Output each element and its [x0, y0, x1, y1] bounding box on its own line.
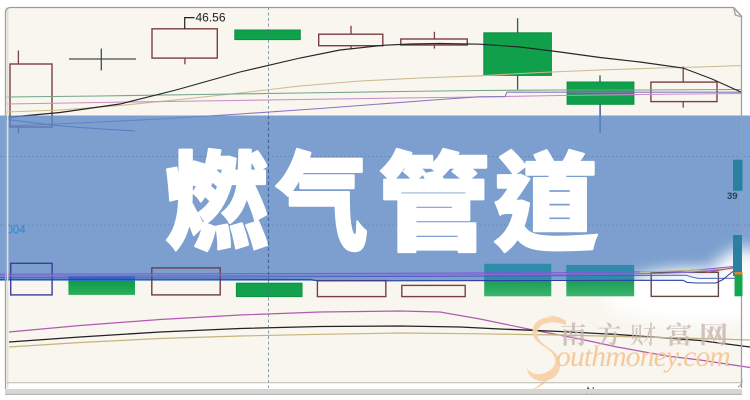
svg-text:39: 39 — [727, 191, 738, 202]
svg-text:outhmoney.com: outhmoney.com — [556, 341, 730, 373]
svg-text:004: 004 — [7, 225, 27, 237]
svg-text:46.56: 46.56 — [196, 11, 226, 25]
